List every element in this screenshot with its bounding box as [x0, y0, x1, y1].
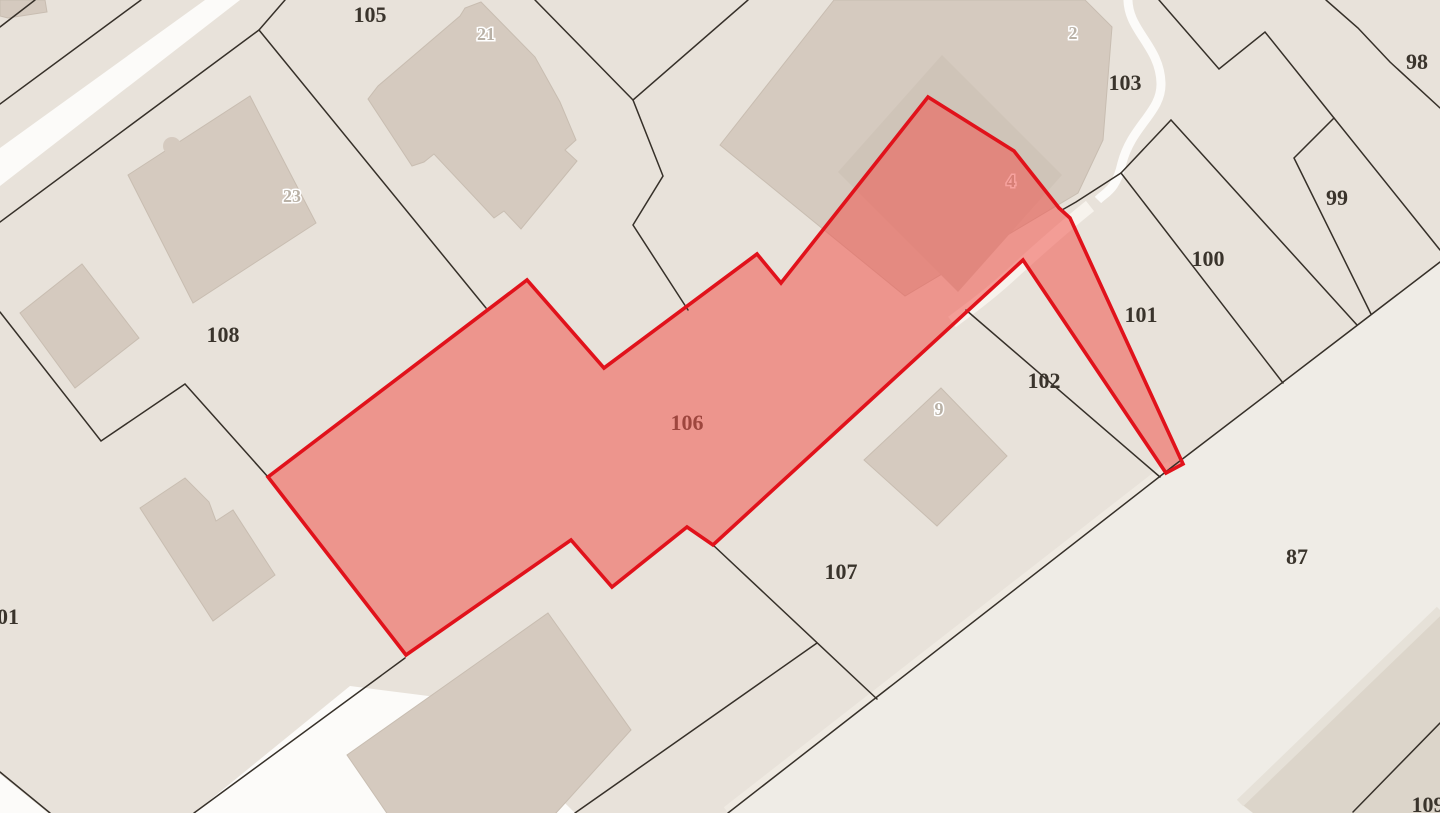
svg-text:100: 100 — [1192, 246, 1225, 271]
svg-text:107: 107 — [825, 559, 858, 584]
svg-text:108: 108 — [207, 322, 240, 347]
svg-text:21: 21 — [477, 24, 495, 44]
svg-text:87: 87 — [1286, 544, 1308, 569]
svg-text:01: 01 — [0, 604, 19, 629]
svg-text:99: 99 — [1326, 185, 1348, 210]
svg-text:2: 2 — [1069, 23, 1078, 43]
svg-text:101: 101 — [1125, 302, 1158, 327]
svg-text:98: 98 — [1406, 49, 1428, 74]
svg-text:109: 109 — [1412, 792, 1440, 813]
svg-text:23: 23 — [283, 186, 301, 206]
svg-text:105: 105 — [354, 2, 387, 27]
svg-text:9: 9 — [935, 399, 944, 419]
svg-text:103: 103 — [1109, 70, 1142, 95]
svg-text:102: 102 — [1028, 368, 1061, 393]
